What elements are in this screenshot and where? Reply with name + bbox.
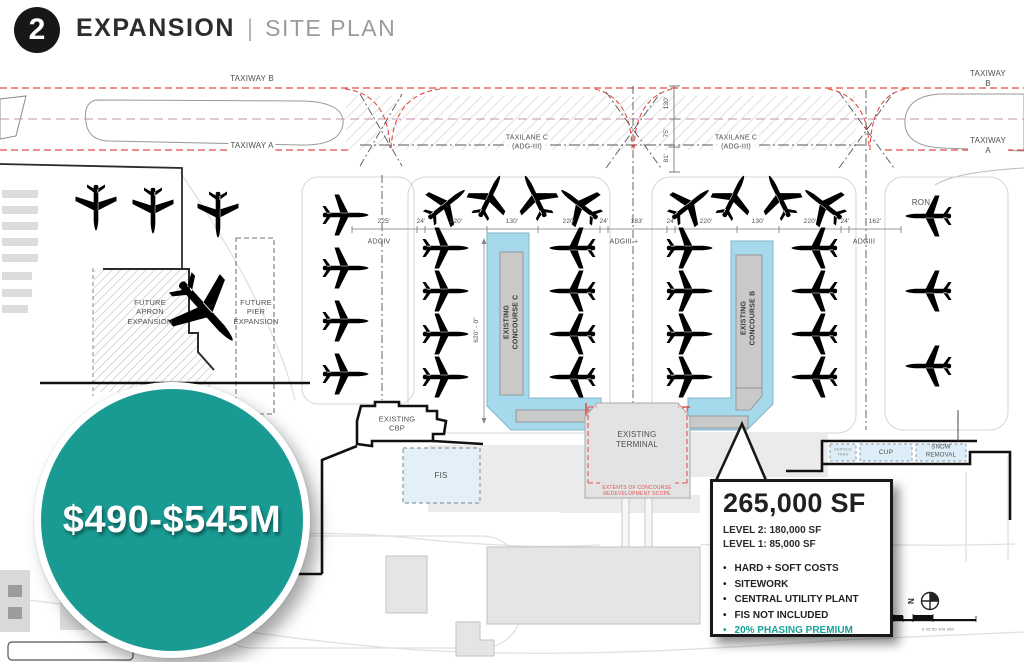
cost-scope-list: •HARD + SOFT COSTS•SITEWORK•CENTRAL UTIL…: [723, 561, 880, 639]
scale-bar: [893, 614, 976, 622]
bullet-dot: •: [723, 623, 727, 639]
bullet-dot: •: [723, 561, 727, 577]
area-callout-box: 265,000 SF LEVEL 2: 180,000 SF LEVEL 1: …: [710, 479, 893, 637]
bullet-dot: •: [723, 608, 727, 624]
apron-dimension-line: [352, 226, 901, 233]
aircraft-icon: [667, 228, 713, 269]
aircraft-icon: [667, 314, 713, 355]
taxilane-hatch: [346, 96, 856, 150]
aircraft-icon: [416, 174, 477, 235]
section-number-badge: 2: [14, 7, 60, 53]
level-areas: LEVEL 2: 180,000 SF LEVEL 1: 85,000 SF: [723, 524, 880, 552]
bullet-dot: •: [723, 592, 727, 608]
title-divider: |: [247, 15, 253, 43]
aircraft-icon: [906, 346, 952, 387]
bullet-dot: •: [723, 577, 727, 593]
page: { "header": { "badge": "2", "title": "EX…: [0, 0, 1024, 662]
aircraft-icon: [549, 174, 610, 235]
aircraft-icon: [660, 174, 721, 235]
aircraft-icon: [550, 314, 596, 355]
aircraft-icon: [906, 271, 952, 312]
aircraft-icon: [76, 185, 117, 231]
aircraft-icon: [792, 314, 838, 355]
cbp-outline: [357, 402, 483, 446]
aircraft-icon: [423, 357, 469, 398]
scope-list-item: •CENTRAL UTILITY PLANT: [723, 592, 880, 608]
section-number: 2: [29, 13, 46, 47]
aircraft-icon: [423, 314, 469, 355]
scope-list-item: •SITEWORK: [723, 577, 880, 593]
existing-terminal-shape: [585, 403, 690, 498]
aircraft-icon: [461, 167, 518, 226]
north-arrow-icon: [922, 593, 939, 610]
aircraft-icon: [423, 271, 469, 312]
cost-bubble: $490-$545M: [34, 382, 310, 658]
aircraft-icon: [667, 357, 713, 398]
aircraft-icon: [198, 192, 239, 238]
parking-structures: [386, 547, 700, 656]
concourse-c-shape: [487, 233, 601, 430]
header: 2 EXPANSION | SITE PLAN: [0, 0, 1024, 58]
aircraft-icon: [550, 271, 596, 312]
aircraft-icon: [792, 228, 838, 269]
page-title: EXPANSION: [76, 14, 235, 43]
bullet-text: 20% PHASING PREMIUM: [735, 623, 853, 639]
aircraft-icon: [792, 357, 838, 398]
aircraft-icon: [423, 228, 469, 269]
aircraft-icon: [323, 301, 369, 342]
aircraft-icon: [705, 167, 762, 226]
cup-snow-boxes: [830, 444, 966, 461]
aircraft-icon: [323, 248, 369, 289]
fis-zone: [403, 448, 480, 503]
bullet-text: FIS NOT INCLUDED: [735, 608, 829, 624]
future-apron-expansion-zone: [93, 268, 214, 396]
scope-list-item: •20% PHASING PREMIUM: [723, 623, 880, 639]
cost-range-label: $490-$545M: [63, 499, 281, 542]
title-row: EXPANSION | SITE PLAN: [76, 14, 396, 43]
aircraft-icon: [751, 167, 808, 226]
total-area-value: 265,000 SF: [723, 490, 880, 517]
aircraft-icon: [323, 354, 369, 395]
concourse-length-dimension: [482, 238, 487, 424]
aircraft-icon: [792, 271, 838, 312]
aircraft-icon: [550, 357, 596, 398]
aircraft-icon: [667, 271, 713, 312]
aircraft-icon: [507, 167, 564, 226]
aircraft-icon: [133, 188, 174, 234]
bullet-text: CENTRAL UTILITY PLANT: [735, 592, 859, 608]
bullet-text: HARD + SOFT COSTS: [735, 561, 839, 577]
page-subtitle: SITE PLAN: [265, 15, 396, 42]
bullet-text: SITEWORK: [735, 577, 789, 593]
aircraft-icon: [906, 196, 952, 237]
scope-list-item: •HARD + SOFT COSTS: [723, 561, 880, 577]
parking-lane-outlines: [302, 177, 1008, 433]
aircraft-icon: [793, 174, 854, 235]
scope-list-item: •FIS NOT INCLUDED: [723, 608, 880, 624]
aircraft-icon: [550, 228, 596, 269]
